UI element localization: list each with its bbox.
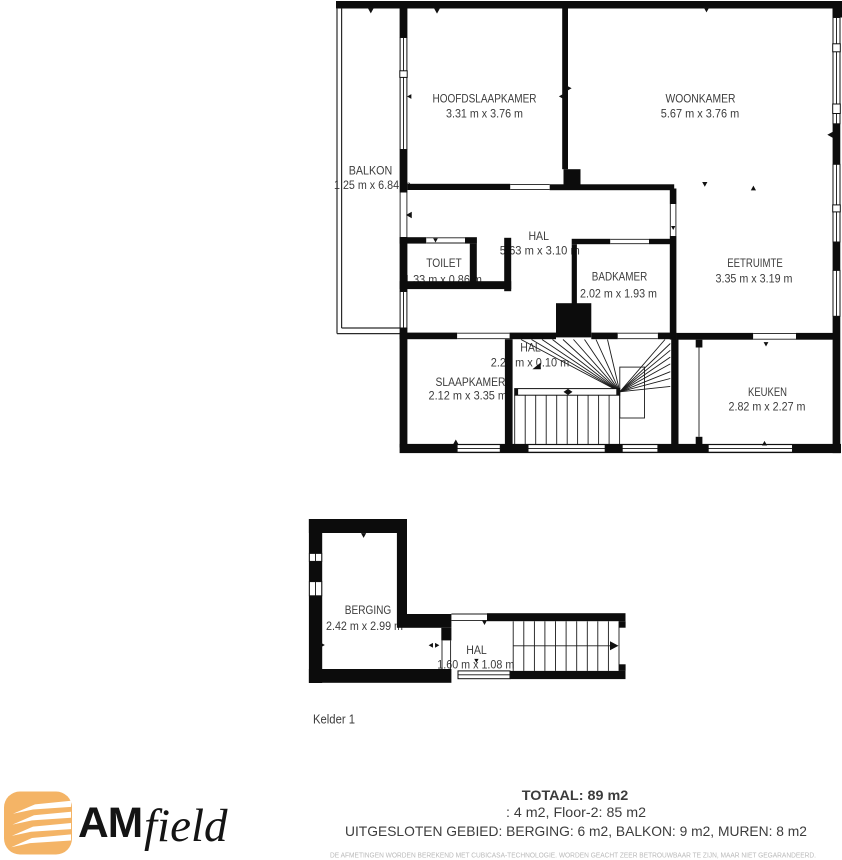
svg-text:1.25 m x 6.84 m: 1.25 m x 6.84 m [334, 179, 411, 192]
svg-text:HOOFDSLAAPKAMER: HOOFDSLAAPKAMER [433, 93, 537, 106]
svg-text:TOTAAL: 89 m2: TOTAAL: 89 m2 [522, 787, 629, 803]
svg-text:3.31 m x 3.76 m: 3.31 m x 3.76 m [446, 108, 523, 121]
svg-text:WOONKAMER: WOONKAMER [666, 93, 736, 106]
svg-text:HAL: HAL [528, 230, 549, 243]
svg-text:KEUKEN: KEUKEN [748, 386, 787, 399]
svg-text:2.02 m x 1.93 m: 2.02 m x 1.93 m [580, 287, 657, 300]
svg-text:5.67 m x 3.76 m: 5.67 m x 3.76 m [661, 108, 740, 121]
svg-text:: 4 m2, Floor-2: 85 m2: : 4 m2, Floor-2: 85 m2 [506, 804, 646, 820]
svg-text:EETRUIMTE: EETRUIMTE [727, 257, 783, 270]
svg-text:3.35 m x 3.19 m: 3.35 m x 3.19 m [716, 272, 793, 285]
svg-text:SLAAPKAMER: SLAAPKAMER [436, 376, 506, 389]
svg-text:2.42 m x 2.99 m: 2.42 m x 2.99 m [326, 620, 403, 633]
svg-text:BALKON: BALKON [349, 165, 393, 178]
svg-text:BADKAMER: BADKAMER [592, 271, 648, 284]
svg-text:5.63 m x 3.10 m: 5.63 m x 3.10 m [500, 245, 580, 258]
svg-text:AM: AM [78, 800, 142, 847]
svg-text:Kelder 1: Kelder 1 [313, 713, 355, 727]
svg-text:DE AFMETINGEN WORDEN BEREKEND: DE AFMETINGEN WORDEN BEREKEND MET CUBICA… [330, 853, 816, 860]
svg-text:HAL: HAL [466, 644, 487, 657]
svg-text:field: field [144, 800, 228, 852]
svg-text:TOILET: TOILET [426, 257, 462, 270]
svg-text:BERGING: BERGING [345, 604, 392, 617]
svg-text:2.82 m x 2.27 m: 2.82 m x 2.27 m [729, 401, 806, 414]
svg-text:UITGESLOTEN GEBIED: BERGING: 6: UITGESLOTEN GEBIED: BERGING: 6 m2, BALKO… [345, 823, 807, 839]
svg-text:2.12 m x 3.35 m: 2.12 m x 3.35 m [429, 390, 508, 403]
